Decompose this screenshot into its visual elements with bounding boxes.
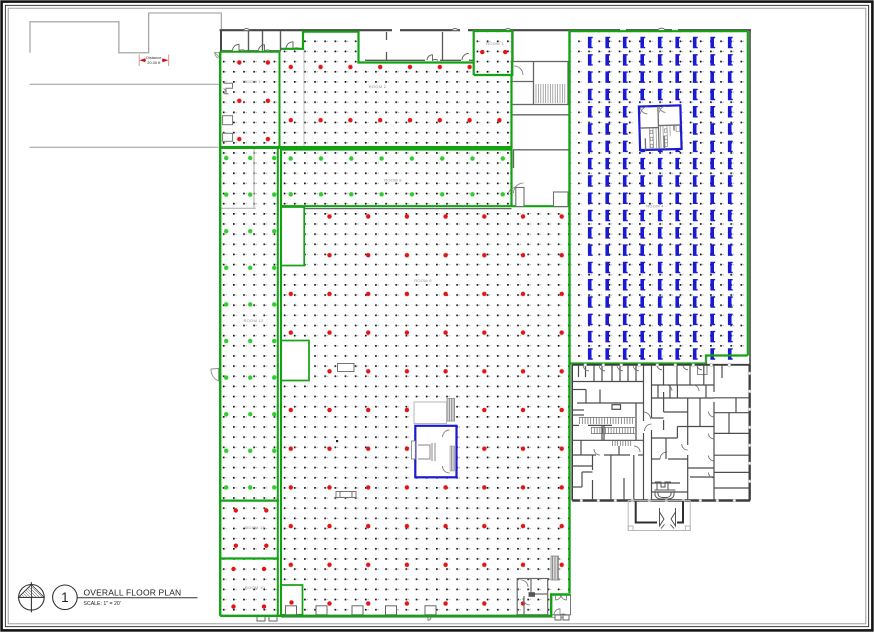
svg-text:ROOM 9: ROOM 9 xyxy=(414,278,432,283)
svg-text:ROOM 11: ROOM 11 xyxy=(245,525,265,530)
svg-text:ROOM 1: ROOM 1 xyxy=(243,79,261,84)
svg-text:ROOM 12: ROOM 12 xyxy=(243,318,264,323)
svg-text:ROOM 10: ROOM 10 xyxy=(245,585,266,590)
svg-text:ROOM 8: ROOM 8 xyxy=(384,178,402,183)
svg-text:ROOM 4: ROOM 4 xyxy=(646,204,664,209)
svg-text:ROOM 3: ROOM 3 xyxy=(486,41,504,46)
svg-text:OVERALL FLOOR PLAN: OVERALL FLOOR PLAN xyxy=(84,587,182,597)
svg-text:20.00 ft: 20.00 ft xyxy=(147,60,161,65)
svg-text:1: 1 xyxy=(61,590,69,605)
svg-text:ROOM 2: ROOM 2 xyxy=(369,84,387,89)
svg-text:SCALE: 1" = 20': SCALE: 1" = 20' xyxy=(84,601,121,607)
